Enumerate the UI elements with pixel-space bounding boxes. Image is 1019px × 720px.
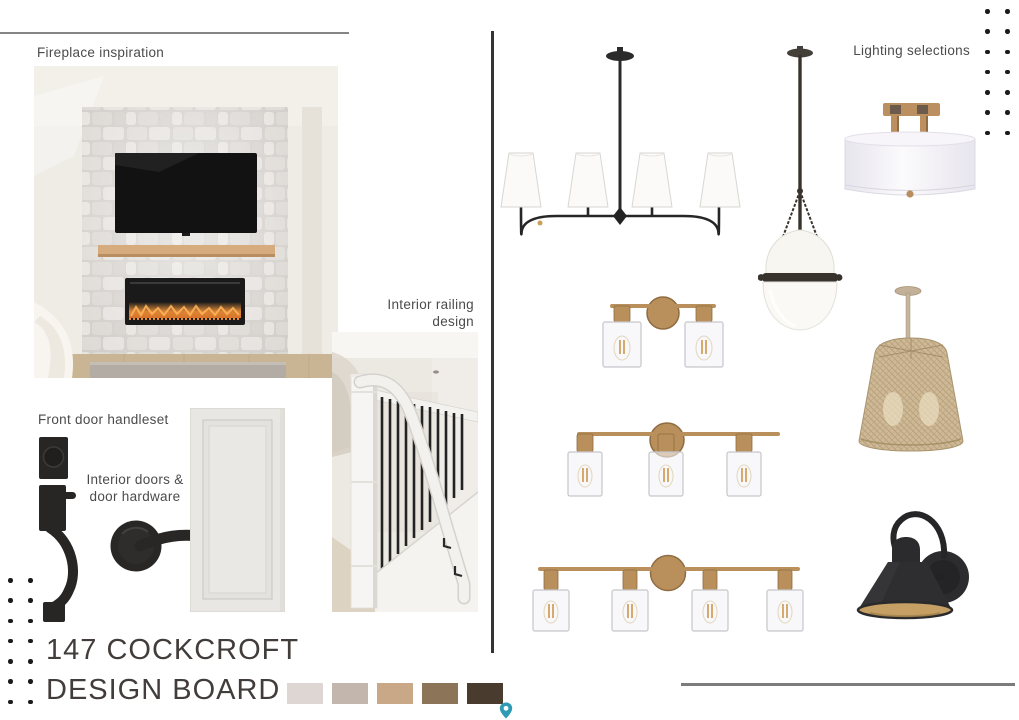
four-light-vanity-image bbox=[528, 548, 813, 632]
top-left-rule bbox=[0, 32, 349, 34]
railing-label-line2: design bbox=[432, 314, 474, 329]
interior-doors-label-line2: door hardware bbox=[90, 489, 181, 504]
board-title: 147 COCKCROFT DESIGN BOARD bbox=[46, 630, 299, 710]
rattan-pendant-image bbox=[853, 281, 970, 453]
bottom-right-rule bbox=[681, 683, 1015, 686]
center-divider-line bbox=[491, 31, 494, 653]
railing-label-line1: Interior railing bbox=[387, 297, 474, 312]
color-palette bbox=[287, 683, 503, 704]
palette-swatch-4 bbox=[422, 683, 458, 704]
railing-section-label: Interior railing design bbox=[334, 296, 474, 330]
interior-railing-photo bbox=[332, 332, 478, 612]
front-door-section-label: Front door handleset bbox=[38, 411, 169, 428]
front-door-handleset-photo bbox=[36, 432, 84, 627]
design-board: Fireplace inspiration Interior railing d… bbox=[0, 0, 1019, 720]
interior-doors-label-line1: Interior doors & bbox=[86, 472, 183, 487]
two-light-vanity-image bbox=[596, 292, 730, 370]
palette-swatch-2 bbox=[332, 683, 368, 704]
palette-swatch-3 bbox=[377, 683, 413, 704]
fireplace-inspiration-photo bbox=[34, 66, 338, 378]
lighting-section-label: Lighting selections bbox=[830, 42, 970, 59]
interior-door-photo bbox=[190, 408, 285, 612]
fireplace-section-label: Fireplace inspiration bbox=[37, 44, 164, 61]
location-pin-icon bbox=[499, 702, 513, 719]
linear-chandelier-image bbox=[498, 42, 743, 254]
three-light-vanity-image bbox=[565, 420, 795, 498]
dot-grid-bottom-left bbox=[8, 578, 33, 720]
drum-semi-flush-image bbox=[840, 95, 980, 205]
board-title-line1: 147 COCKCROFT bbox=[46, 634, 299, 666]
palette-swatch-5 bbox=[467, 683, 503, 704]
opal-urn-pendant-image bbox=[758, 42, 848, 337]
dot-grid-top-right bbox=[985, 9, 1010, 151]
board-title-line2: DESIGN BOARD bbox=[46, 670, 299, 710]
barn-wall-sconce-image bbox=[856, 492, 971, 624]
palette-swatch-1 bbox=[287, 683, 323, 704]
